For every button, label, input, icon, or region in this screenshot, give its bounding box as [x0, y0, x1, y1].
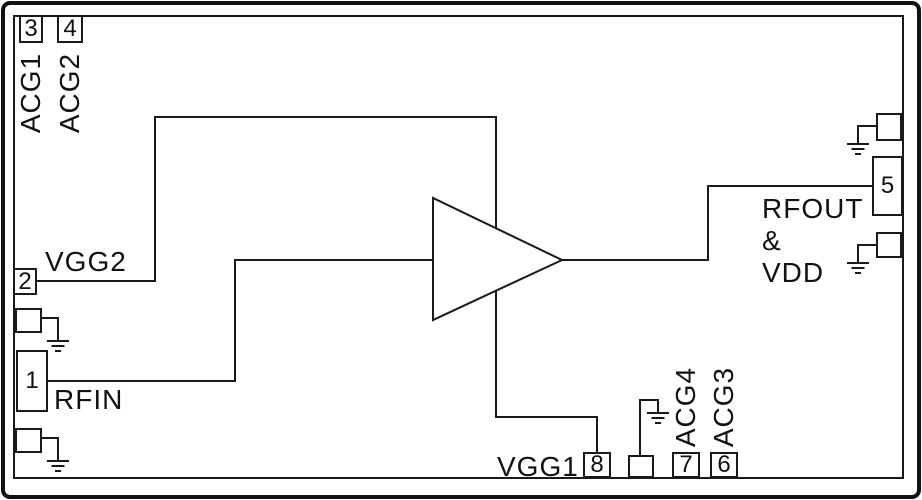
- pin-2: 2: [13, 268, 37, 295]
- bypass-box: [876, 232, 902, 258]
- label-acg4: ACG4: [673, 359, 699, 455]
- bypass-box: [15, 308, 42, 333]
- pin-6: 6: [710, 452, 738, 478]
- label-rfout-line1: RFOUT: [762, 193, 863, 225]
- label-vgg1: VGG1: [497, 453, 579, 481]
- pin-3: 3: [19, 15, 43, 43]
- ground-icon: [42, 318, 69, 351]
- wire-rfin-to-amp: [48, 260, 433, 381]
- label-acg1: ACG1: [18, 45, 44, 141]
- label-acg2: ACG2: [57, 45, 83, 141]
- block-diagram: 3 4 2 1 5 8 7 6 VGG2 RFIN VGG1 RFOUT & V…: [0, 0, 922, 500]
- label-rfout-line3: VDD: [762, 257, 863, 289]
- label-rfin: RFIN: [54, 386, 123, 414]
- bypass-box: [15, 428, 42, 453]
- pin-5: 5: [872, 156, 903, 216]
- pin-1: 1: [16, 350, 48, 412]
- bypass-box: [628, 455, 654, 478]
- wire-amp-to-vgg1: [496, 291, 597, 452]
- ground-icon: [847, 126, 876, 154]
- pin-4: 4: [57, 15, 83, 43]
- label-rfout-vdd: RFOUT & VDD: [762, 193, 863, 289]
- bypass-box: [876, 113, 902, 141]
- ground-icon: [640, 400, 669, 455]
- label-acg3: ACG3: [711, 359, 737, 455]
- pin-8: 8: [583, 452, 611, 478]
- label-vgg2: VGG2: [45, 248, 127, 276]
- label-rfout-line2: &: [762, 225, 863, 257]
- ground-icon: [42, 438, 69, 471]
- amplifier-triangle-icon: [433, 198, 562, 320]
- pin-7: 7: [672, 452, 700, 478]
